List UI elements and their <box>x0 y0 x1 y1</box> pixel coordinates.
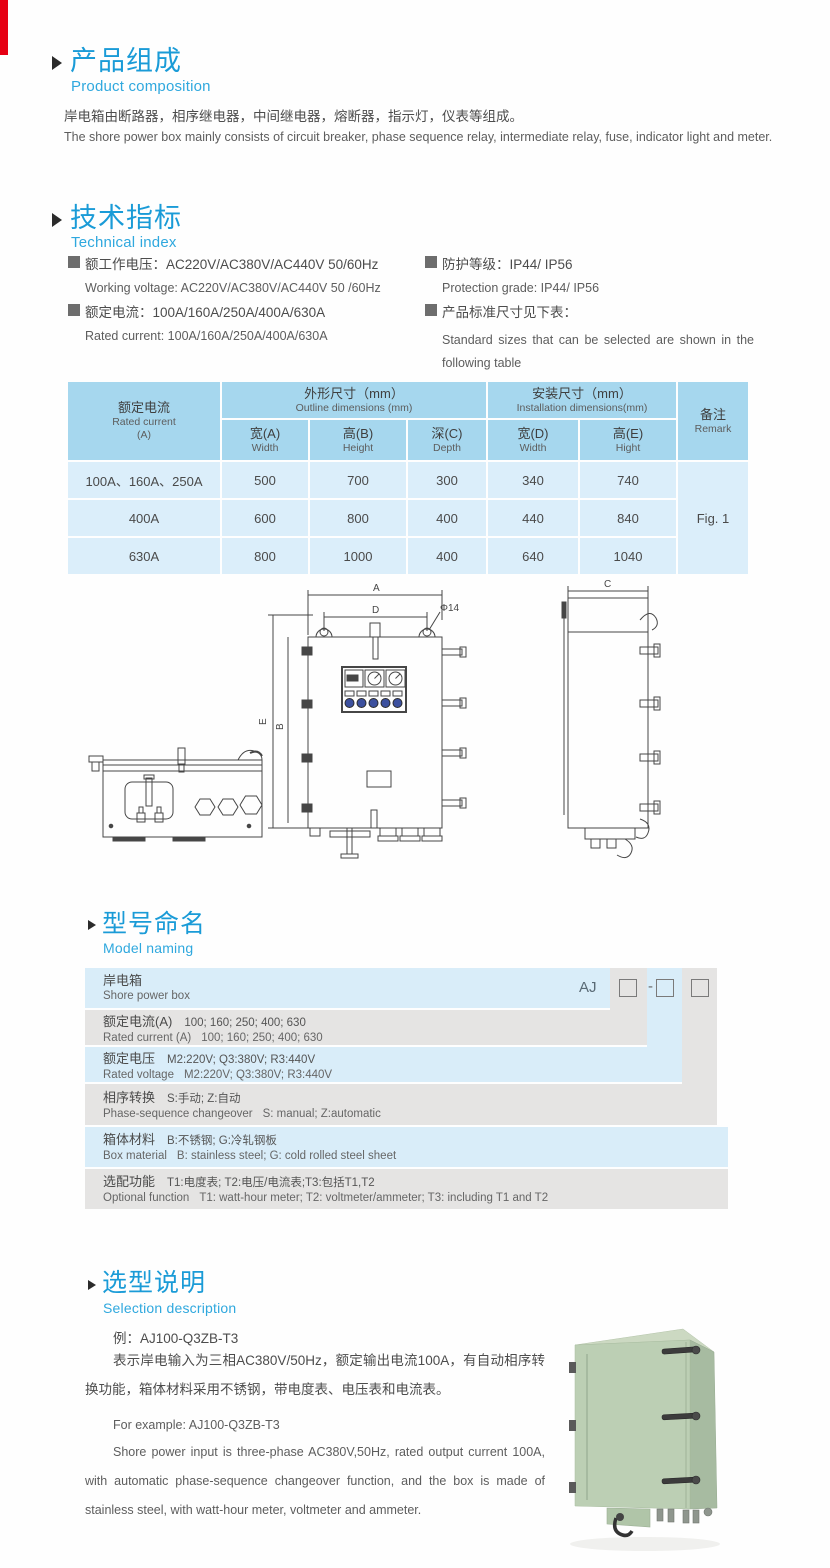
header-text: Width <box>520 442 547 455</box>
spec-standard-sizes: 产品标准尺寸见下表： Standard sizes that can be se… <box>425 301 754 375</box>
spec-text-en: Working voltage: AC220V/AC380V/AC440V 50… <box>85 281 381 295</box>
svg-text:B: B <box>275 723 286 730</box>
table-row-cell: 740 <box>580 462 676 498</box>
table-subheader-depth-c: 深(C) Depth <box>408 420 486 460</box>
datasheet-page: 产品组成 Product composition 岸电箱由断路器，相序继电器，中… <box>0 0 830 1568</box>
cell-value: 800 <box>347 511 369 526</box>
table-remark-cell: Fig. 1 <box>678 462 748 574</box>
square-bullet-icon <box>425 256 437 268</box>
table-header-outline: 外形尺寸（mm） Outline dimensions (mm) <box>222 382 486 418</box>
technical-drawing: A D Φ14 E B <box>80 575 700 880</box>
cell-value: 100A、160A、250A <box>85 471 202 490</box>
selection-desc-en: Shore power input is three-phase AC380V,… <box>85 1438 545 1525</box>
spec-working-voltage: 额工作电压：AC220V/AC380V/AC440V 50/60Hz Worki… <box>68 253 381 295</box>
meter-panel-drawing <box>342 667 406 712</box>
table-row-cell: 800 <box>310 500 406 536</box>
row-label-cn: 箱体材料 <box>103 1132 155 1147</box>
model-code-dash: - <box>648 978 653 995</box>
naming-row-phase-sequence: 相序转换S:手动; Z:自动 Phase-sequence changeover… <box>85 1084 717 1125</box>
header-text: 宽(A) <box>250 426 280 442</box>
product-photo <box>550 1312 800 1567</box>
table-row-cell: 400A <box>68 500 220 536</box>
header-text: Outline dimensions (mm) <box>296 402 413 415</box>
model-code-box <box>619 979 637 997</box>
svg-text:Φ14: Φ14 <box>440 603 460 614</box>
spec-rated-current: 额定电流：100A/160A/250A/400A/630A Rated curr… <box>68 301 328 343</box>
cell-value: 400 <box>436 511 458 526</box>
spec-text-cn: 防护等级：IP44/ IP56 <box>442 253 599 273</box>
square-bullet-icon <box>68 304 80 316</box>
section-title-cn: 选型说明 <box>102 1271 206 1296</box>
table-row-cell: 440 <box>488 500 578 536</box>
header-text: Width <box>252 442 279 455</box>
header-text: Rated current <box>112 416 176 429</box>
table-subheader-height-e: 高(E) Hight <box>580 420 676 460</box>
row-label-en: Shore power box <box>103 989 610 1004</box>
header-text: 宽(D) <box>517 426 548 442</box>
cell-value: 1040 <box>614 549 643 564</box>
table-subheader-width-d: 宽(D) Width <box>488 420 578 460</box>
spec-text-cn: 额定电流：100A/160A/250A/400A/630A <box>85 301 328 321</box>
row-label-en: Optional function <box>103 1192 189 1204</box>
row-options-cn: B:不锈钢; G:冷轧钢板 <box>167 1135 277 1147</box>
table-header-rated-current: 额定电流 Rated current (A) <box>68 382 220 460</box>
row-options-cn: 100; 160; 250; 400; 630 <box>184 1017 306 1029</box>
model-code-box <box>691 979 709 997</box>
table-row-cell: 600 <box>222 500 308 536</box>
row-label-en: Phase-sequence changeover <box>103 1108 253 1120</box>
row-label-cn: 岸电箱 <box>103 973 610 989</box>
table-row-cell: 100A、160A、250A <box>68 462 220 498</box>
front-view-drawing: A D Φ14 E B <box>258 583 466 858</box>
cell-value: 800 <box>254 549 276 564</box>
svg-text:D: D <box>372 605 379 616</box>
table-row-cell: 630A <box>68 538 220 574</box>
section-title-en: Model naming <box>103 940 193 956</box>
table-row-cell: 1040 <box>580 538 676 574</box>
table-row-cell: 300 <box>408 462 486 498</box>
row-options-cn: M2:220V; Q3:380V; R3:440V <box>167 1054 315 1066</box>
side-view-drawing: C <box>562 579 660 858</box>
cell-value: 840 <box>617 511 639 526</box>
cell-value: 440 <box>522 511 544 526</box>
row-label-en: Box material <box>103 1150 167 1162</box>
row-options-cn: T1:电度表; T2:电压/电流表;T3:包括T1,T2 <box>167 1177 375 1189</box>
spec-text-en: Rated current: 100A/160A/250A/400A/630A <box>85 329 328 343</box>
table-row-cell: 400 <box>408 538 486 574</box>
selection-desc-cn: 表示岸电输入为三相AC380V/50Hz，额定输出电流100A，有自动相序转换功… <box>85 1346 545 1404</box>
spec-text-cn: 额工作电压：AC220V/AC380V/AC440V 50/60Hz <box>85 253 381 273</box>
svg-text:A: A <box>373 583 380 594</box>
spec-text-cn: 产品标准尺寸见下表： <box>442 301 754 321</box>
header-text: Depth <box>433 442 461 455</box>
cell-value: 740 <box>617 473 639 488</box>
table-row-cell: 640 <box>488 538 578 574</box>
row-options-en: S: manual; Z:automatic <box>263 1108 381 1120</box>
cell-value: 600 <box>254 511 276 526</box>
section-title-en: Selection description <box>103 1300 236 1316</box>
table-row-cell: 1000 <box>310 538 406 574</box>
cell-value: 500 <box>254 473 276 488</box>
row-options-en: T1: watt-hour meter; T2: voltmeter/ammet… <box>199 1192 548 1204</box>
row-label-en: Rated current (A) <box>103 1032 191 1044</box>
bottom-view-drawing <box>89 748 262 841</box>
header-text: Remark <box>695 423 732 436</box>
table-row-cell: 400 <box>408 500 486 536</box>
header-text: Installation dimensions(mm) <box>517 402 648 415</box>
table-subheader-width-a: 宽(A) Width <box>222 420 308 460</box>
section-arrow-icon <box>88 1280 96 1290</box>
cell-value: 300 <box>436 473 458 488</box>
table-header-installation: 安装尺寸（mm） Installation dimensions(mm) <box>488 382 676 418</box>
row-label-en: Rated voltage <box>103 1069 174 1081</box>
naming-row-rated-voltage: 额定电压M2:220V; Q3:380V; R3:440V Rated volt… <box>85 1047 682 1082</box>
header-text: 外形尺寸（mm） <box>304 386 404 402</box>
header-text: 高(B) <box>343 426 373 442</box>
table-row-cell: 700 <box>310 462 406 498</box>
cell-value: 630A <box>129 549 159 564</box>
spec-protection-grade: 防护等级：IP44/ IP56 Protection grade: IP44/ … <box>425 253 599 295</box>
table-header-remark: 备注 Remark <box>678 382 748 460</box>
cell-value: 1000 <box>344 549 373 564</box>
header-text: Height <box>343 442 373 455</box>
header-text: 深(C) <box>431 426 462 442</box>
selection-example-en: For example: AJ100-Q3ZB-T3 <box>113 1418 280 1432</box>
header-text: (A) <box>137 429 151 442</box>
model-code-box <box>656 979 674 997</box>
square-bullet-icon <box>68 256 80 268</box>
cell-value: 400 <box>436 549 458 564</box>
square-bullet-icon <box>425 304 437 316</box>
table-row-cell: 800 <box>222 538 308 574</box>
svg-text:C: C <box>604 579 611 590</box>
cell-value: 340 <box>522 473 544 488</box>
section-title-cn: 型号命名 <box>102 912 206 937</box>
section-model-naming: 型号命名 Model naming 岸电箱 Shore power box 额定… <box>0 0 830 241</box>
row-label-cn: 额定电压 <box>103 1051 155 1066</box>
table-row-cell: 500 <box>222 462 308 498</box>
header-text: 备注 <box>700 407 726 423</box>
svg-text:E: E <box>258 718 269 725</box>
header-text: 高(E) <box>613 426 643 442</box>
row-options-en: M2:220V; Q3:380V; R3:440V <box>184 1069 332 1081</box>
row-label-cn: 相序转换 <box>103 1090 155 1105</box>
naming-row-rated-current: 额定电流(A)100; 160; 250; 400; 630 Rated cur… <box>85 1010 647 1045</box>
row-label-cn: 选配功能 <box>103 1174 155 1189</box>
model-naming-table: 岸电箱 Shore power box 额定电流(A)100; 160; 250… <box>85 968 728 1209</box>
table-row-cell: 340 <box>488 462 578 498</box>
row-options-cn: S:手动; Z:自动 <box>167 1093 240 1105</box>
header-text: 额定电流 <box>118 400 170 416</box>
cell-value: 700 <box>347 473 369 488</box>
table-subheader-height-b: 高(B) Height <box>310 420 406 460</box>
header-text: 安装尺寸（mm） <box>532 386 632 402</box>
cell-value: 640 <box>522 549 544 564</box>
model-code-prefix: AJ <box>579 979 597 996</box>
row-options-en: B: stainless steel; G: cold rolled steel… <box>177 1150 396 1162</box>
section-arrow-icon <box>88 920 96 930</box>
naming-row-optional-function: 选配功能T1:电度表; T2:电压/电流表;T3:包括T1,T2 Optiona… <box>85 1169 728 1209</box>
selection-example-cn: 例：AJ100-Q3ZB-T3 <box>113 1327 238 1347</box>
dimensions-table: 额定电流 Rated current (A) 外形尺寸（mm） Outline … <box>68 382 748 574</box>
naming-row-box-material: 箱体材料B:不锈钢; G:冷轧钢板 Box materialB: stainle… <box>85 1127 728 1167</box>
spec-text-en: Standard sizes that can be selected are … <box>442 329 754 375</box>
table-row-cell: 840 <box>580 500 676 536</box>
naming-row-shore-power-box: 岸电箱 Shore power box <box>85 968 610 1008</box>
spec-text-en: Protection grade: IP44/ IP56 <box>442 281 599 295</box>
cell-value: 400A <box>129 511 159 526</box>
row-options-en: 100; 160; 250; 400; 630 <box>201 1032 323 1044</box>
cell-value: Fig. 1 <box>697 511 730 526</box>
header-text: Hight <box>616 442 641 455</box>
row-label-cn: 额定电流(A) <box>103 1014 172 1029</box>
